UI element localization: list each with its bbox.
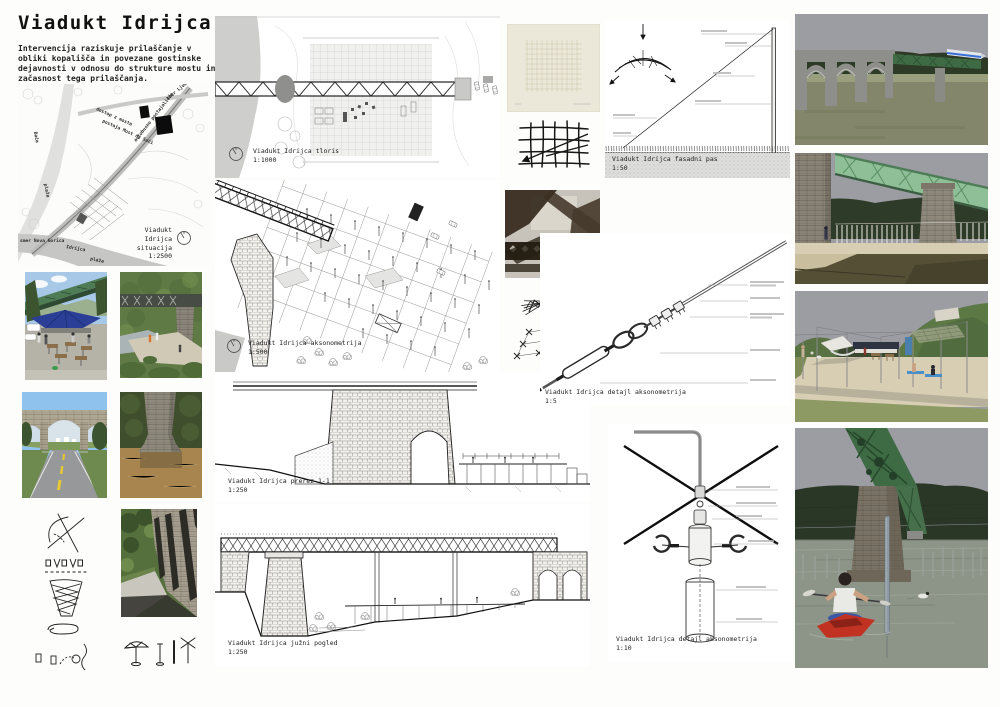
photo-path-under-viaduct [121,509,197,617]
blue-banner [905,337,912,355]
facade-strip-label: Viadukt Idrijca fasadni pas 1:50 [612,155,752,173]
dark-awning [853,342,899,349]
right-pier [919,183,957,245]
site-plan-label: Viadukt Idrijca situacija 1:2500 [118,226,172,261]
pier [935,68,945,102]
photo-viaduct-over-river [120,272,202,378]
pole [772,28,775,154]
plan-label: Viadukt Idrijca tloris 1:1000 [253,147,373,165]
render-beach-canopies [795,291,988,422]
grass-band [605,146,790,153]
intro-paragraph: Intervencija raziskuje prilaščanje v obl… [18,44,220,84]
sketch-site-lines [42,512,88,554]
grid-arrow-sketch [516,118,592,176]
photo-arches-over-road [22,392,107,498]
cable-detail-label: Viadukt Idrijca detajl aksonometrija 1:5 [545,388,715,406]
foreground-soil [795,254,988,284]
elevation-label: Viadukt Idrijca južni pogled 1:250 [228,639,378,657]
north-arrow-icon [226,338,242,354]
render-viaduct-train [795,14,988,145]
person [824,226,828,239]
pier-top [275,75,295,103]
sketch-plan-notes [34,642,92,672]
sketch-element-icons [122,636,200,668]
render-under-bridge [795,153,988,284]
head [839,573,852,586]
north-arrow-icon [176,230,192,246]
post-detail-drawing [608,424,793,662]
photo-market-under-bridge [25,272,107,380]
building [139,105,150,118]
cable-detail-drawing [540,233,790,405]
photo-pier-in-river [120,392,202,498]
sketch-ellipse [44,622,82,636]
white-shirt [833,588,857,612]
reflection [140,452,182,468]
render-kayaker [795,428,988,668]
north-arrow-icon [228,146,244,162]
axonometric-label: Viadukt Idrijca aksonometrija 1:500 [248,339,378,357]
main-pier [261,552,308,636]
map-label-dir-ng: smer Nova Gorica [20,238,64,244]
building [155,115,173,135]
reference-artwork-grid [507,24,600,112]
section-label: Viadukt Idrijca prerez 1-1 1:250 [228,477,368,495]
sketch-rhythm [45,556,87,574]
presentation-board: Viadukt Idrijca Intervencija raziskuje p… [0,0,1000,707]
stone-arches [533,552,587,600]
sand [795,243,988,255]
sketch-funnel [48,578,84,620]
post-detail-label: Viadukt Idrijca detajl aksonometrija 1:1… [616,635,786,653]
